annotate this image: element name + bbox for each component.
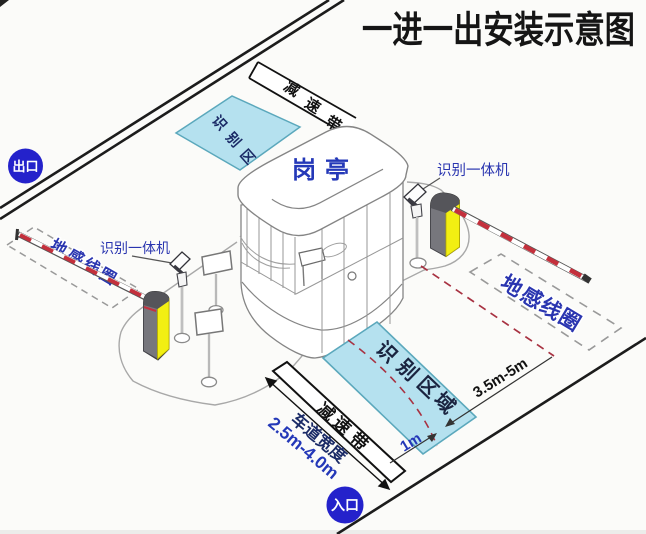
svg-text:入口: 入口 — [331, 497, 359, 513]
svg-text:识别一体机: 识别一体机 — [100, 240, 170, 256]
svg-text:出口: 出口 — [12, 159, 38, 174]
svg-text:岗亭: 岗亭 — [292, 156, 358, 184]
svg-text:识别一体机: 识别一体机 — [437, 162, 510, 179]
svg-text:一进一出安装示意图: 一进一出安装示意图 — [362, 10, 635, 52]
